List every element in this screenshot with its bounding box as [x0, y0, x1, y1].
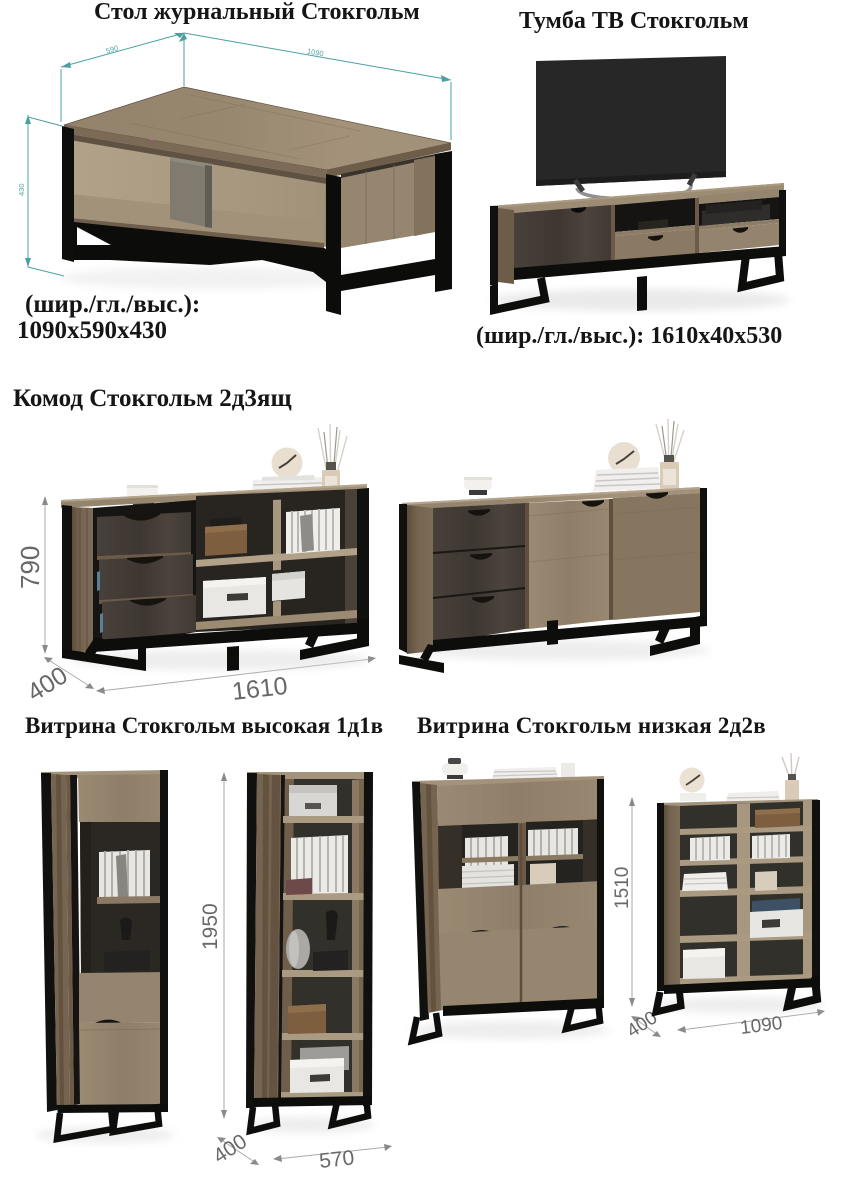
- svg-text:1090: 1090: [306, 46, 324, 58]
- svg-text:570: 570: [318, 1146, 355, 1173]
- svg-text:1950: 1950: [199, 903, 222, 950]
- svg-text:430: 430: [17, 183, 26, 196]
- svg-text:1610: 1610: [231, 672, 289, 706]
- svg-text:1090: 1090: [739, 1013, 784, 1039]
- svg-text:1510: 1510: [612, 867, 633, 909]
- svg-text:790: 790: [15, 546, 45, 589]
- svg-text:590: 590: [105, 43, 120, 55]
- svg-text:400: 400: [209, 1130, 251, 1168]
- svg-text:400: 400: [22, 661, 72, 707]
